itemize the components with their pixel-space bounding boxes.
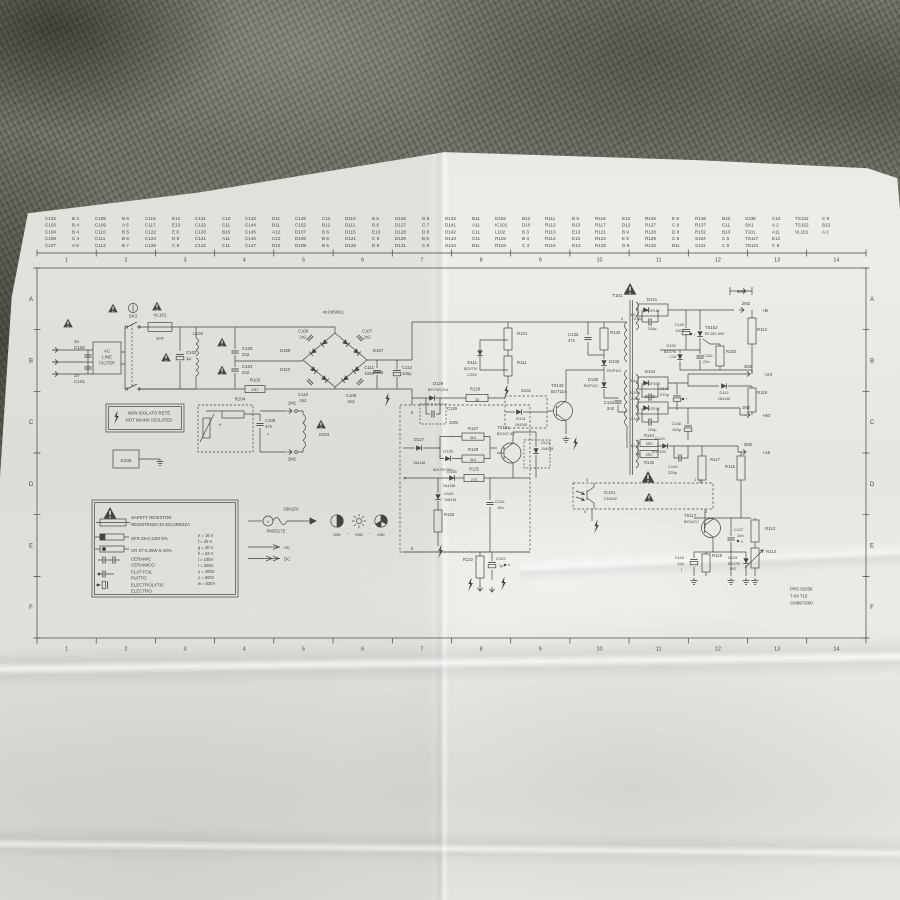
- part-location: B 6: [322, 229, 329, 234]
- part-location: E12: [172, 216, 181, 221]
- schematic-label: 470μ: [660, 392, 670, 397]
- schematic-label: 3k3: [470, 457, 476, 462]
- schematic-label: C108: [346, 393, 357, 398]
- part-ref: C144: [245, 223, 256, 228]
- schematic-label: R114: [766, 549, 777, 554]
- schematic-label: +24: [764, 372, 772, 378]
- schematic-label: ELECTRO: [131, 589, 152, 594]
- schematic-label: R121: [517, 331, 528, 336]
- schematic-label: D107: [373, 348, 384, 353]
- schematic-label: 2n2: [299, 335, 307, 340]
- schematic-label: 2R2: [646, 442, 653, 446]
- warning-triangle-icon: [217, 338, 227, 347]
- schematic-label: R152: [726, 349, 737, 354]
- part-location: B 6: [122, 236, 129, 241]
- part-ref: D127: [395, 223, 406, 228]
- schematic-label: D136: [588, 377, 599, 382]
- warning-triangle-icon: [624, 283, 637, 295]
- part-ref: C107: [45, 243, 56, 248]
- schematic-label: 220p: [668, 470, 678, 475]
- schematic-label: S106: [120, 458, 132, 464]
- schematic-label: D108: [373, 370, 384, 375]
- part-ref: D121: [345, 236, 356, 241]
- grid-column-number: 12: [715, 647, 721, 653]
- ground-icon: [690, 578, 697, 585]
- schematic-label: u: [267, 432, 269, 436]
- schematic-label: 1μ: [186, 356, 191, 361]
- schematic-label: C102: [186, 350, 197, 355]
- part-ref: C143: [245, 216, 256, 221]
- lightning-icon: [573, 437, 578, 451]
- schematic-label: FLAT FOIL: [131, 570, 153, 575]
- part-ref: TS132: [795, 216, 809, 221]
- part-ref: C145: [245, 229, 256, 234]
- schematic-label: C112: [402, 365, 413, 370]
- grid-row-letter: B: [29, 359, 33, 365]
- part-location: B10: [222, 229, 231, 234]
- degauss-coil: [303, 414, 306, 449]
- schematic-label: +t: [218, 422, 222, 427]
- part-location: D 8: [622, 243, 630, 248]
- schematic-label: C148: [659, 386, 669, 391]
- schematic-label: 4R7: [251, 387, 258, 392]
- part-ref: SK1: [745, 223, 754, 228]
- part-location: C10: [772, 216, 781, 221]
- grid-column-number: 6: [361, 647, 364, 653]
- schematic-label: SK1: [129, 314, 138, 319]
- part-ref: R115: [545, 243, 556, 248]
- part-ref: C152: [295, 223, 306, 228]
- part-location: D 8: [422, 229, 430, 234]
- schematic-label: 1: [694, 477, 696, 482]
- grid-column-number: 4: [243, 258, 246, 264]
- part-ref: R128: [645, 229, 656, 234]
- schematic-label: RGP10D: [646, 382, 660, 386]
- part-ref: R152: [695, 229, 706, 234]
- part-location: B 7: [122, 243, 129, 248]
- part-ref: C148: [295, 216, 306, 221]
- schematic-label: R129: [470, 387, 481, 392]
- grid-row-letter: D: [29, 482, 34, 488]
- part-location: B 4: [522, 236, 529, 241]
- part-ref: R103: [495, 236, 506, 241]
- part-location: C 5: [722, 236, 730, 241]
- part-ref: S104: [695, 236, 706, 241]
- schematic-label: NON ISOLATO RETE: [128, 411, 171, 416]
- schematic-label: RGP10D: [652, 450, 666, 454]
- part-ref: D125: [345, 243, 356, 248]
- schematic-label: BZX79/C2V4: [428, 388, 448, 392]
- part-location: B12: [822, 223, 831, 228]
- schematic-label: 4M2: [744, 364, 753, 369]
- schematic-label: C129: [447, 406, 458, 411]
- part-ref: IC101: [495, 223, 508, 228]
- schematic-label: R144: [644, 433, 655, 438]
- schematic-label: D111: [467, 360, 477, 365]
- warning-triangle-icon: [217, 366, 227, 375]
- ground-icon: [751, 578, 758, 585]
- grid-column-number: 8: [480, 647, 483, 653]
- grid-row-letter: E: [29, 544, 33, 550]
- schematic-label: S104: [319, 432, 330, 437]
- grid-column-number: 3: [184, 647, 187, 653]
- schematic-label: 8: [411, 546, 414, 551]
- part-location: E13: [572, 229, 581, 234]
- warning-triangle-icon: [104, 507, 117, 519]
- part-ref: R122: [595, 236, 606, 241]
- schematic-label: 100μ: [672, 427, 682, 432]
- part-ref: TS121: [745, 243, 759, 248]
- grid-column-number: 10: [596, 647, 602, 653]
- schematic-label: PIATTO: [131, 576, 147, 581]
- schematic-label: C110: [298, 392, 309, 397]
- part-location: D12: [272, 243, 281, 248]
- schematic-label: D115: [728, 555, 738, 560]
- schematic-label: R113: [765, 526, 776, 531]
- schematic-label: CNX62: [604, 496, 618, 501]
- part-location: C11: [722, 223, 731, 228]
- part-location: A11: [472, 223, 480, 228]
- schematic-label: PRS 02358: [790, 587, 813, 592]
- schematic-label: R103: [250, 378, 261, 383]
- schematic-label: SFR 25-0.12W 5%: [131, 536, 168, 541]
- part-location: E12: [772, 236, 781, 241]
- part-ref: C141: [195, 236, 206, 241]
- part-ref: D108: [295, 236, 306, 241]
- schematic-label: S131: [521, 388, 532, 393]
- schematic-label: CR 37-0.25W 5-10%: [131, 548, 172, 553]
- part-location: E 8: [672, 216, 679, 221]
- part-ref: C131: [195, 216, 206, 221]
- ground-icon: [727, 578, 734, 585]
- schematic-label: C24V: [467, 372, 477, 377]
- part-location: B 5: [122, 229, 129, 234]
- part-location: B 3: [522, 229, 529, 234]
- part-location: B 4: [72, 223, 79, 228]
- part-location: C 9: [772, 243, 780, 248]
- grid-column-number: 11: [656, 258, 662, 264]
- schematic-label: C107: [362, 329, 373, 334]
- schematic-label: 270: [471, 478, 477, 482]
- lightning-icon: [468, 578, 473, 592]
- schematic-label: 220p: [648, 427, 658, 432]
- schematic-label: 1n: [74, 373, 80, 378]
- part-location: B 8: [422, 236, 429, 241]
- part-ref: R137: [695, 223, 706, 228]
- color-wheel-icon: [375, 515, 387, 527]
- schematic-label: R133: [610, 330, 621, 335]
- schematic-label: +16: [762, 450, 770, 456]
- schematic-label: D152: [666, 343, 676, 348]
- part-ref: L102: [495, 229, 506, 234]
- part-location: D10: [522, 223, 531, 228]
- schematic-label: 10n: [737, 533, 744, 538]
- schematic-label: 2n2: [299, 398, 307, 403]
- part-ref: R129: [645, 236, 656, 241]
- grid-column-number: 6: [361, 258, 364, 264]
- part-ref: S131: [695, 243, 706, 248]
- schematic-label: BC547C: [684, 519, 699, 524]
- warning-triangle-icon: [316, 420, 326, 429]
- part-ref: D143: [445, 236, 456, 241]
- part-location: B11: [472, 243, 480, 248]
- part-ref: T101: [745, 229, 756, 234]
- schematic-label: R111: [517, 360, 527, 365]
- part-ref: D111: [345, 223, 356, 228]
- schematic-label: D128: [443, 449, 453, 454]
- grid-row-letter: C: [870, 420, 875, 426]
- part-ref: C122: [145, 229, 156, 234]
- grid-column-number: 2: [124, 258, 127, 264]
- schematic-label: D144: [645, 369, 656, 374]
- part-location: C 8: [172, 243, 180, 248]
- schematic-label: C133: [568, 332, 579, 337]
- schematic-label: 6V2: [730, 567, 736, 571]
- part-ref: R112: [545, 223, 556, 228]
- part-location: A 2: [822, 229, 829, 234]
- schematic-label: D129: [433, 381, 444, 386]
- schematic-label: 3M2: [744, 442, 753, 447]
- warning-triangle-icon: [644, 493, 654, 502]
- schematic-label: R116: [712, 553, 723, 558]
- schematic-label: BZX79/: [664, 350, 676, 354]
- schematic-label: D143: [655, 436, 665, 441]
- part-location: E 8: [172, 229, 179, 234]
- grid-column-number: 12: [715, 258, 721, 264]
- schematic-label: 1N4148: [541, 447, 553, 451]
- primary-control-section: [400, 322, 604, 592]
- lightning-icon: [114, 411, 119, 425]
- schematic-label: 7: [404, 476, 407, 481]
- switch-fuse-section: [108, 302, 335, 393]
- warning-triangle-icon: [63, 319, 73, 328]
- schematic-label: C104: [242, 364, 253, 369]
- schematic-label: R104: [235, 397, 246, 402]
- schematic-label: h: [508, 563, 510, 567]
- part-ref: C108: [95, 216, 106, 221]
- grid-column-number: 2: [124, 647, 127, 653]
- schematic-label: 4: [586, 477, 589, 482]
- part-location: C11: [472, 229, 481, 234]
- part-location: A 2: [772, 223, 779, 228]
- schematic-label: 47n: [265, 424, 273, 429]
- schematic-label: 9M2: [737, 289, 746, 294]
- part-location: C 9: [422, 243, 430, 248]
- part-location: E13: [172, 223, 181, 228]
- part-ref: C124: [145, 236, 156, 241]
- part-ref: D128: [395, 229, 406, 234]
- part-location: A 6: [72, 243, 79, 248]
- schematic-label: BC337-40: [497, 431, 515, 436]
- part-location: D11: [272, 216, 281, 221]
- schematic-label: C117: [734, 527, 744, 532]
- schematic-label: x = 500V: [198, 575, 215, 580]
- schematic-label: D112: [719, 390, 728, 395]
- part-location: B13: [572, 223, 581, 228]
- part-ref: TS117: [745, 236, 759, 241]
- part-ref: C117: [145, 223, 156, 228]
- part-location: C11: [222, 243, 231, 248]
- schematic-label: 220n: [449, 420, 459, 425]
- schematic-label: C124: [495, 499, 505, 504]
- part-location: B 9: [622, 229, 629, 234]
- schematic-label: C152: [703, 353, 713, 358]
- schematic-label: g = 40 V: [198, 545, 214, 550]
- part-location: B11: [472, 216, 480, 221]
- schematic-label: 2M1: [288, 457, 297, 462]
- schematic-label: l = 100V: [198, 557, 213, 562]
- schematic-label: f = 25 V: [198, 539, 212, 544]
- schematic-label: 100μ: [402, 371, 412, 376]
- part-ref: D152: [495, 216, 506, 221]
- part-location: E 8: [622, 236, 629, 241]
- ground-icon: [742, 578, 749, 585]
- schematic-label: 2: [705, 509, 707, 514]
- part-location: B 8: [372, 223, 379, 228]
- part-location: C 9: [822, 216, 830, 221]
- mains-input-section: [52, 319, 125, 389]
- schematic-label: BT151-500: [705, 331, 725, 336]
- schematic-label: r = 250V: [198, 563, 214, 568]
- grid-column-number: 7: [420, 647, 423, 653]
- schematic-label: LINE: [102, 355, 112, 360]
- schematic-label: f: [681, 568, 682, 572]
- schematic-label: TS121: [497, 425, 510, 430]
- schematic-label: VL101: [153, 313, 167, 318]
- part-location: B 4: [72, 229, 79, 234]
- part-ref: D126: [395, 216, 406, 221]
- schematic-label: 2AT: [156, 336, 164, 341]
- part-location: B11: [672, 243, 680, 248]
- grid-column-number: 9: [539, 647, 542, 653]
- grid-row-letter: B: [870, 359, 874, 365]
- grid-column-number: 13: [774, 258, 780, 264]
- schematic-label: 1N4148: [443, 484, 455, 488]
- part-ref: R117: [595, 223, 606, 228]
- grid-column-number: 3: [184, 258, 187, 264]
- schematic-label: e = 16 V: [198, 533, 214, 538]
- schematic-label: D131: [516, 416, 525, 421]
- schematic-label: TS152: [705, 325, 718, 330]
- schematic-label: 5: [584, 509, 586, 514]
- schematic-label: 15n: [497, 505, 504, 510]
- part-location: C 7: [422, 223, 430, 228]
- part-ref: D109: [295, 243, 306, 248]
- schematic-label: C109: [298, 329, 309, 334]
- part-ref: D107: [295, 229, 306, 234]
- schematic-label: 47n: [568, 338, 576, 343]
- schematic-label: R115: [725, 464, 736, 469]
- part-ref: C102: [45, 216, 56, 221]
- part-ref: C133: [195, 229, 206, 234]
- grid-column-number: 10: [596, 258, 602, 264]
- schematic-label: –: [369, 531, 372, 536]
- schematic-label: +B: [762, 308, 768, 314]
- warning-triangle-icon: [642, 471, 655, 483]
- schematic-label: C101: [74, 379, 85, 384]
- grid-column-number: 14: [833, 258, 839, 264]
- schematic-label: R128: [468, 447, 479, 452]
- schematic-label: R122: [463, 557, 474, 562]
- schematic-label: 2n2: [607, 406, 615, 411]
- part-location: C 8: [672, 236, 680, 241]
- grid-column-number: 1: [65, 647, 68, 653]
- schematic-label: TS132: [551, 383, 564, 388]
- schematic-label: PM2517E: [267, 529, 286, 534]
- schematic-label: R112: [757, 327, 768, 332]
- grid-row-letter: C: [29, 420, 34, 426]
- schematic-label: C143: [668, 464, 678, 469]
- part-location: E12: [622, 216, 631, 221]
- schematic-label: D127: [414, 437, 425, 442]
- schematic-label: 20KΩ/V: [283, 507, 299, 512]
- grid-column-number: 4: [243, 647, 246, 653]
- part-ref: D115: [345, 229, 356, 234]
- part-ref: C110: [95, 229, 106, 234]
- warning-triangle-icon: [108, 304, 118, 313]
- schematic-label: 1μ: [499, 563, 504, 568]
- grid-column-number: 14: [833, 647, 839, 653]
- part-ref: C146: [245, 236, 256, 241]
- schematic-label: h = 63 V: [198, 551, 214, 556]
- schematic-label: C111: [364, 365, 374, 370]
- part-location: B11: [272, 223, 280, 228]
- schematic-label: 2M2: [742, 301, 751, 306]
- grid-column-number: 13: [774, 647, 780, 653]
- schematic-label: C116: [675, 555, 685, 560]
- schematic-label: 220p: [648, 326, 658, 331]
- part-location: D 8: [372, 243, 380, 248]
- schematic-label: R126: [444, 512, 455, 517]
- schematic-label: T101: [612, 293, 623, 298]
- schematic-label: RGP15J: [647, 309, 660, 313]
- ground-icon: [562, 436, 569, 443]
- schematic-label: TS117: [684, 513, 697, 518]
- part-ref: C116: [145, 216, 156, 221]
- schematic-label: 1M2: [742, 405, 751, 410]
- schematic-label: R117: [710, 457, 721, 462]
- part-ref: C104: [45, 229, 56, 234]
- part-ref: R121: [595, 229, 606, 234]
- schematic-label: 100n: [364, 371, 374, 376]
- schematic-label: RESISTENZA DI SICUREZZA: [131, 522, 190, 527]
- part-ref: D131: [395, 243, 406, 248]
- schematic-label: C142: [630, 416, 640, 421]
- schematic-label: MIN: [377, 532, 384, 537]
- schematic-label: u = 400V: [198, 569, 215, 574]
- schematic-label: 12: [631, 443, 635, 448]
- schematic-label: C146: [671, 421, 681, 426]
- schematic-label: 1N4148: [444, 498, 456, 502]
- schematic-label: D141: [647, 297, 658, 302]
- schematic-label: RGP10J: [647, 407, 660, 411]
- part-ref: D141: [445, 223, 456, 228]
- warning-triangle-icon: [152, 302, 162, 311]
- part-location: D12: [622, 223, 631, 228]
- grid-column-number: 5: [302, 258, 305, 264]
- schematic-label: 22μ: [677, 561, 684, 566]
- part-ref: R114: [545, 236, 556, 241]
- lightning-icon: [501, 577, 506, 591]
- part-ref: C106: [45, 236, 56, 241]
- schematic-label: 22n: [703, 359, 710, 364]
- lightning-icon: [594, 520, 599, 534]
- part-ref: R116: [595, 216, 606, 221]
- schematic-label: D142: [645, 394, 656, 399]
- part-ref: R127: [645, 223, 656, 228]
- part-ref: VL101: [795, 229, 809, 234]
- grid-row-letter: A: [870, 297, 874, 303]
